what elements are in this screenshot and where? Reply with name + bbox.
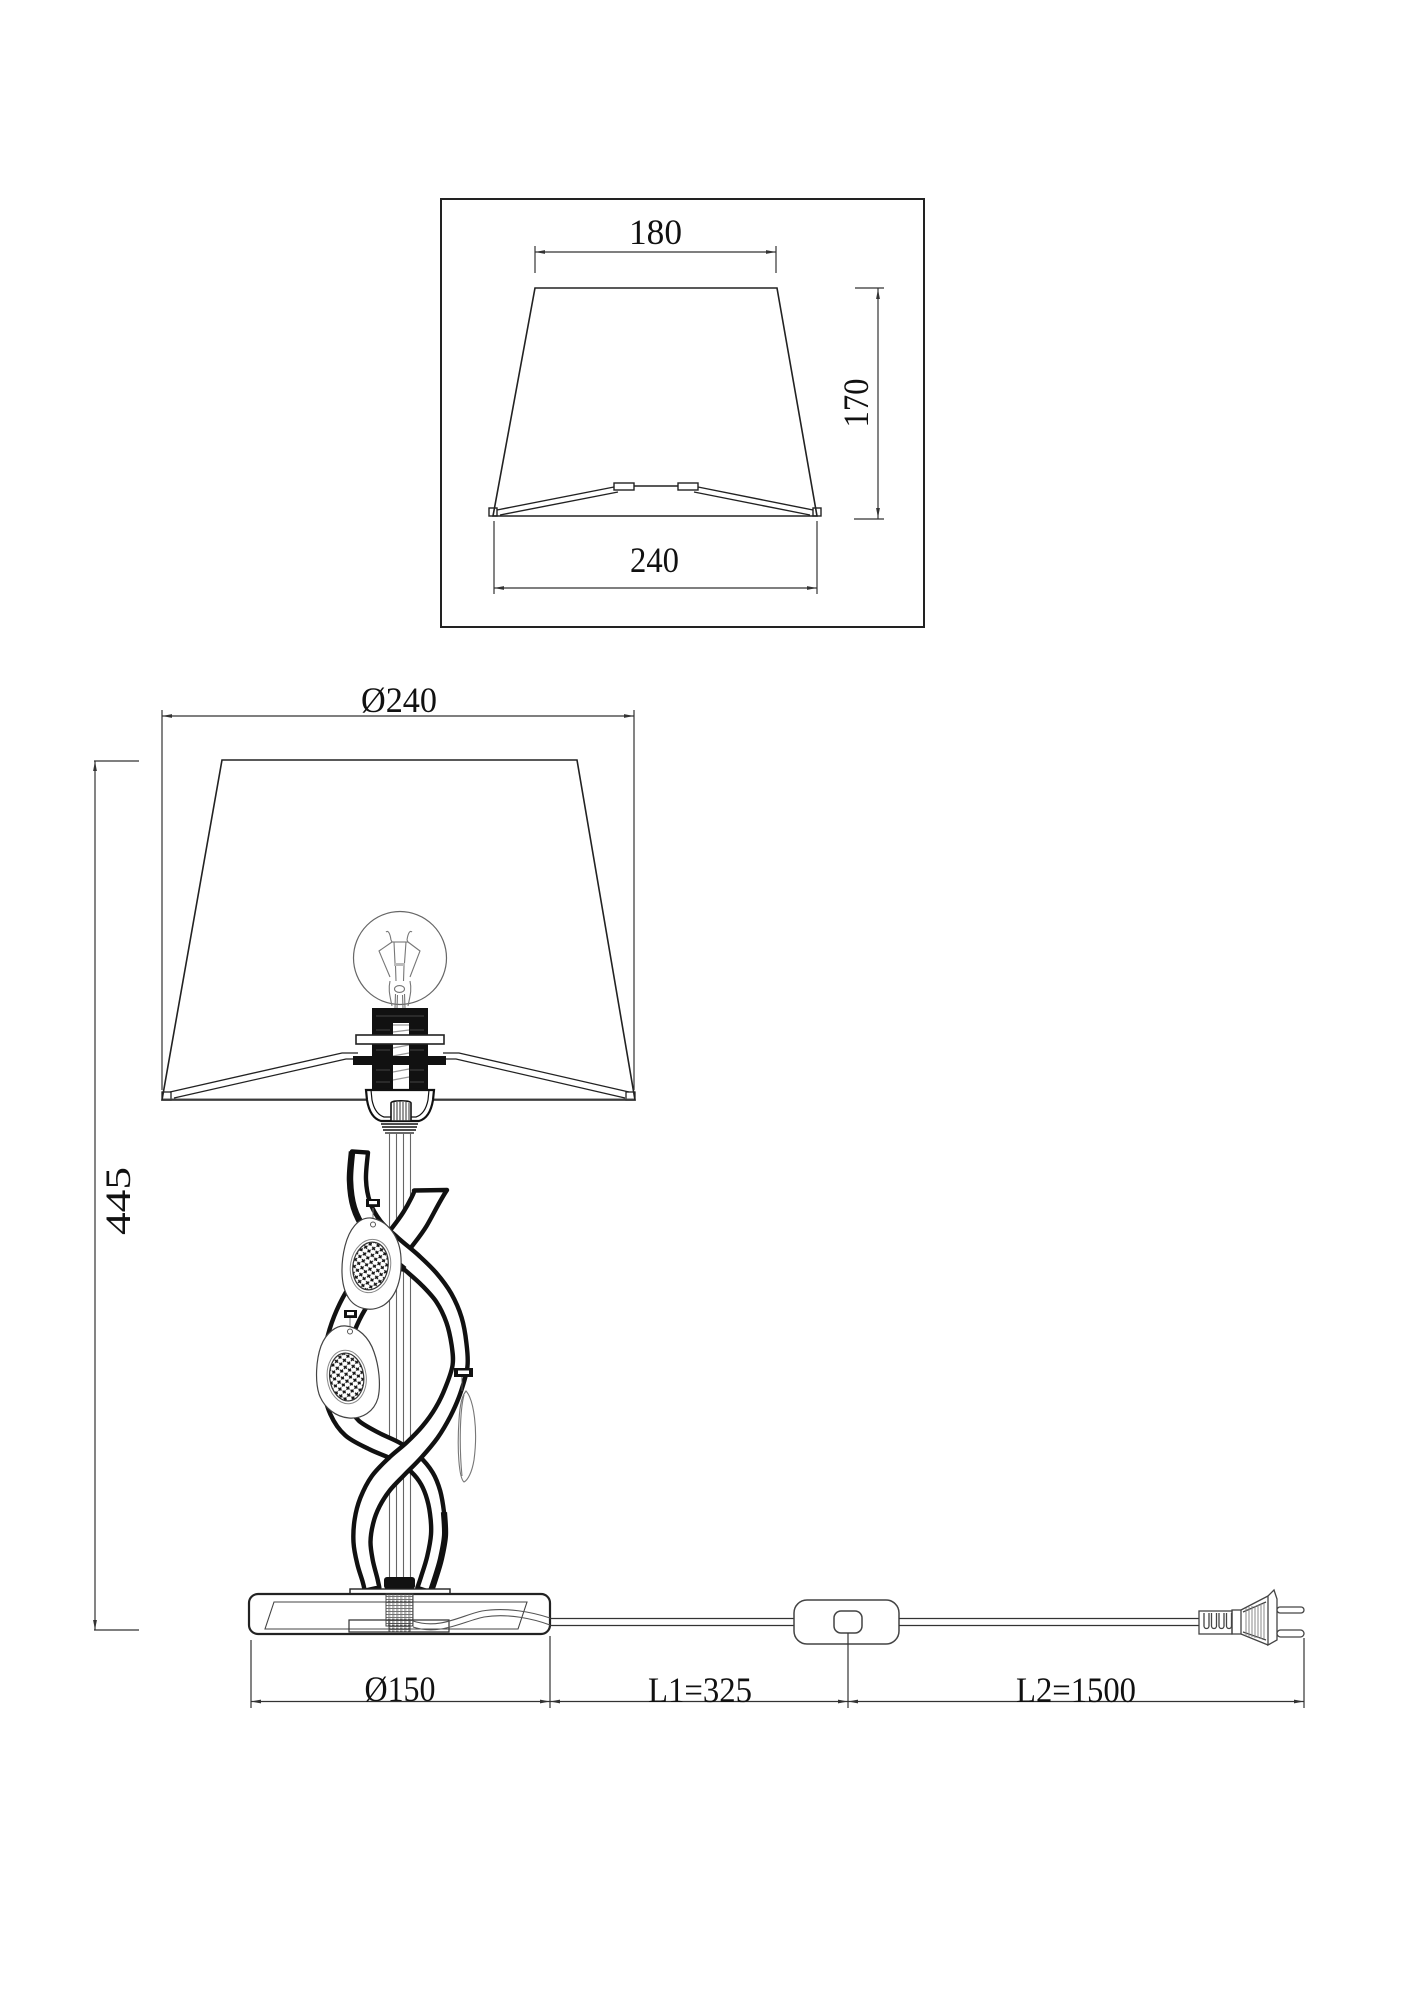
svg-text:445: 445 — [98, 1167, 138, 1235]
svg-text:180: 180 — [629, 212, 682, 252]
svg-text:240: 240 — [630, 540, 679, 580]
svg-text:Ø240: Ø240 — [361, 680, 437, 720]
svg-text:Ø150: Ø150 — [365, 1669, 436, 1709]
svg-text:L1=325: L1=325 — [648, 1670, 752, 1710]
svg-text:L2=1500: L2=1500 — [1016, 1670, 1136, 1710]
svg-text:170: 170 — [836, 379, 876, 428]
